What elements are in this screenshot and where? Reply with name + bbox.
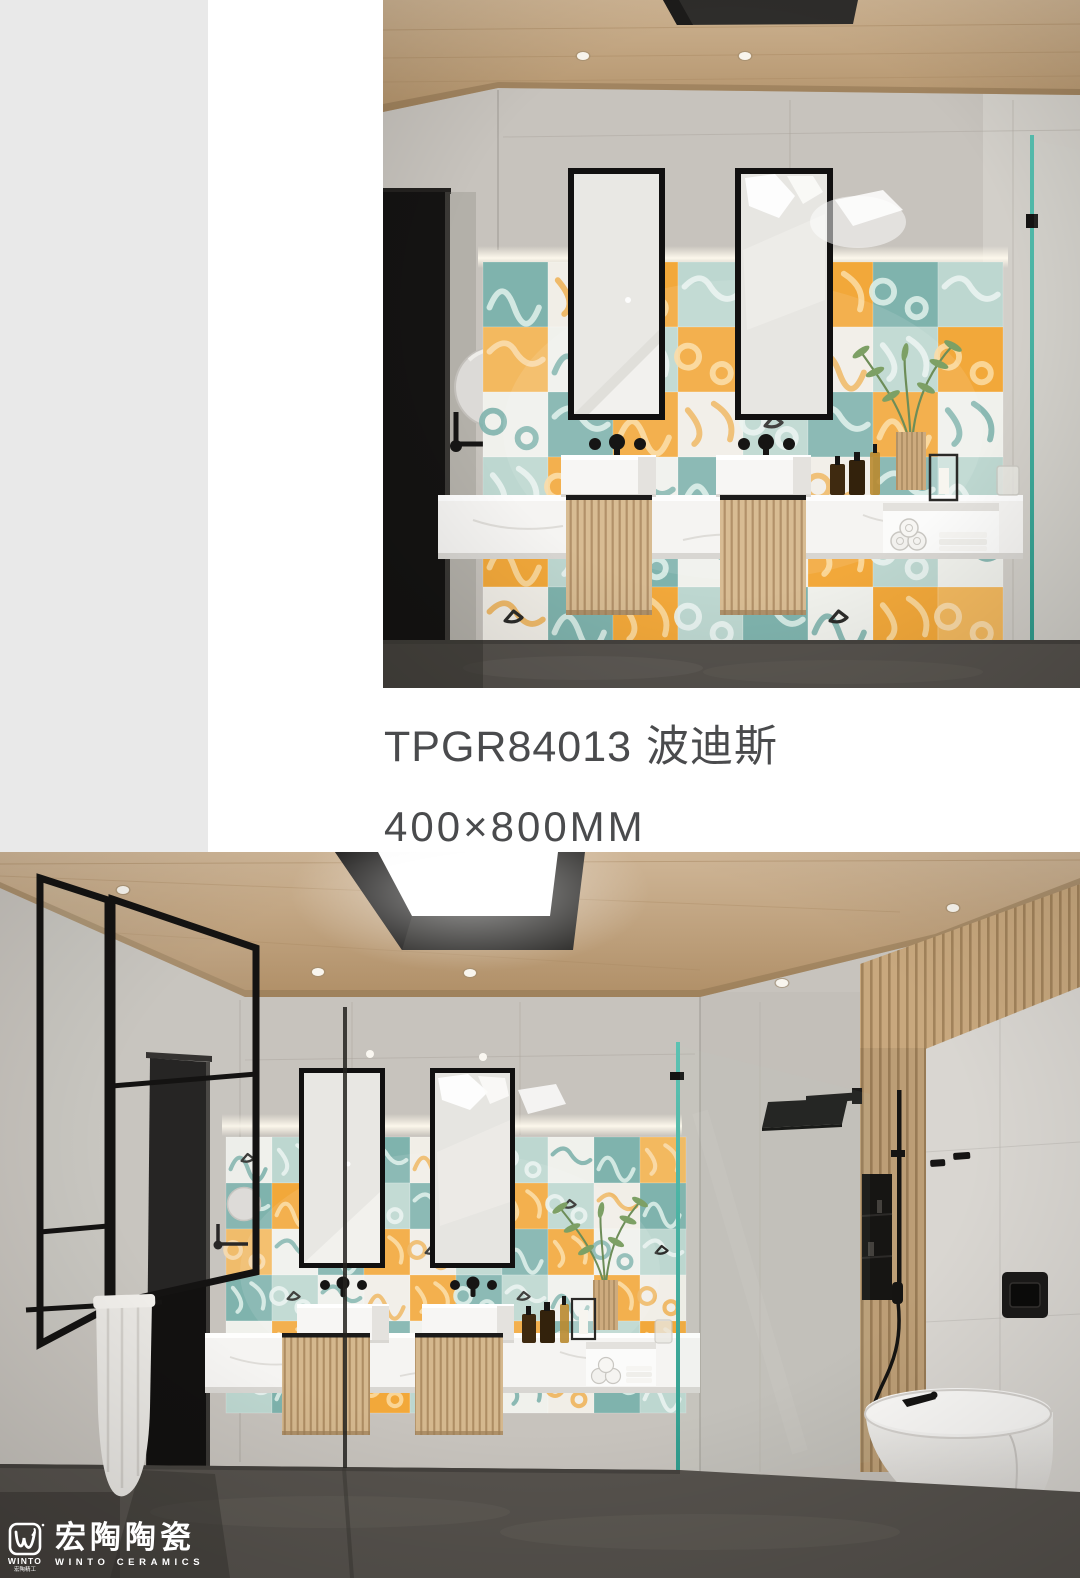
bottom-bathroom-render [0,852,1080,1578]
product-caption: TPGR84013波迪斯 400×800MM [384,712,778,851]
catalog-page: TPGR84013波迪斯 400×800MM [0,0,1080,1578]
product-name: 波迪斯 [646,723,778,771]
winto-emblem-icon: WINTO 宏陶精工 [8,1522,46,1572]
photo-vignette [383,0,1080,688]
brand-logo: WINTO 宏陶精工 宏陶陶瓷 WINTO CERAMICS [8,1522,204,1572]
brand-name-english: WINTO CERAMICS [55,1557,204,1568]
product-code: TPGR84013 [384,723,632,771]
top-bathroom-render [383,0,1080,688]
top-render-scene [383,0,1080,688]
photo-vignette [0,852,1080,1578]
left-gray-strip [0,0,208,852]
emblem-word: WINTO [8,1556,42,1566]
bottom-render-scene [0,852,1080,1578]
emblem-subtext: 宏陶精工 [14,1565,37,1572]
product-size: 400×800MM [384,803,778,851]
brand-name-chinese: 宏陶陶瓷 [55,1522,204,1553]
product-title: TPGR84013波迪斯 [384,712,778,774]
